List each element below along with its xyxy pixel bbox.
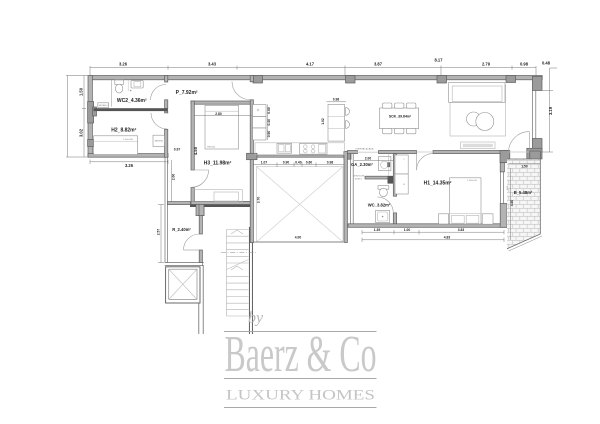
svg-text:SECADO: SECADO <box>99 104 109 107</box>
svg-text:1.07: 1.07 <box>261 160 268 164</box>
svg-text:LUXURY HOMES: LUXURY HOMES <box>226 388 375 404</box>
svg-text:0.60: 0.60 <box>306 160 313 164</box>
svg-text:1.39: 1.39 <box>374 228 381 232</box>
svg-text:2.80: 2.80 <box>215 112 222 116</box>
svg-text:0.60: 0.60 <box>267 107 271 114</box>
svg-text:0.48: 0.48 <box>542 60 551 65</box>
svg-text:0.98: 0.98 <box>333 98 340 102</box>
svg-text:B_5.48m²: B_5.48m² <box>514 190 533 195</box>
svg-text:1.50: 1.50 <box>78 87 83 96</box>
svg-text:0.97: 0.97 <box>174 147 181 151</box>
svg-text:4.00: 4.00 <box>295 236 302 240</box>
svg-text:2.57: 2.57 <box>156 229 160 236</box>
svg-text:3.26: 3.26 <box>119 61 128 66</box>
svg-text:3.87: 3.87 <box>374 61 383 66</box>
svg-text:3.19: 3.19 <box>548 106 553 115</box>
svg-text:1.62: 1.62 <box>321 118 325 125</box>
svg-text:4.50: 4.50 <box>510 200 514 207</box>
svg-text:2.00: 2.00 <box>365 157 372 161</box>
svg-text:Baerz & Co: Baerz & Co <box>225 326 377 383</box>
svg-text:4.50: 4.50 <box>193 146 198 155</box>
svg-text:3.02: 3.02 <box>78 128 83 137</box>
svg-text:P_7.92m²: P_7.92m² <box>176 90 198 96</box>
svg-text:3.83: 3.83 <box>458 228 465 232</box>
svg-text:0.90: 0.90 <box>283 160 290 164</box>
svg-text:R_2.40m²: R_2.40m² <box>172 227 191 232</box>
svg-text:VESTIDOR: VESTIDOR <box>353 176 365 178</box>
svg-text:4.83: 4.83 <box>444 236 451 240</box>
svg-text:3.26: 3.26 <box>125 163 134 168</box>
svg-text:1.00: 1.00 <box>404 228 411 232</box>
svg-text:0.40: 0.40 <box>267 119 271 126</box>
svg-text:3.43: 3.43 <box>208 61 217 66</box>
svg-text:H3_11.98m²: H3_11.98m² <box>204 161 232 167</box>
svg-text:PUERTA LACADA: PUERTA LACADA <box>356 147 374 150</box>
svg-text:1.35x2.00: 1.35x2.00 <box>467 180 477 182</box>
svg-text:GA_2.30m²: GA_2.30m² <box>351 162 373 167</box>
svg-text:SCK_39.84m²: SCK_39.84m² <box>389 114 412 118</box>
svg-text:0.98: 0.98 <box>327 160 334 164</box>
svg-text:SUELO: SUELO <box>355 179 363 181</box>
svg-text:MESITA: MESITA <box>155 140 164 143</box>
svg-text:8.17: 8.17 <box>435 57 444 62</box>
svg-text:1.50: 1.50 <box>521 165 528 169</box>
svg-text:1.50x1.90: 1.50x1.90 <box>123 139 133 141</box>
svg-text:0.40: 0.40 <box>295 160 302 164</box>
svg-text:H1_14.35m²: H1_14.35m² <box>424 181 452 187</box>
svg-text:0.60: 0.60 <box>267 131 271 138</box>
svg-text:3.70: 3.70 <box>256 197 260 204</box>
svg-text:4.17: 4.17 <box>306 61 315 66</box>
svg-text:WC_3.82m²: WC_3.82m² <box>368 203 391 208</box>
svg-text:H2_8.82m²: H2_8.82m² <box>111 127 136 133</box>
svg-text:HELGA: HELGA <box>207 145 215 148</box>
svg-text:2.79: 2.79 <box>482 61 491 66</box>
svg-text:2.00: 2.00 <box>171 174 175 181</box>
svg-text:0.98: 0.98 <box>520 61 529 66</box>
svg-text:WC2_4.36m²: WC2_4.36m² <box>117 98 147 104</box>
svg-text:by: by <box>248 310 264 327</box>
